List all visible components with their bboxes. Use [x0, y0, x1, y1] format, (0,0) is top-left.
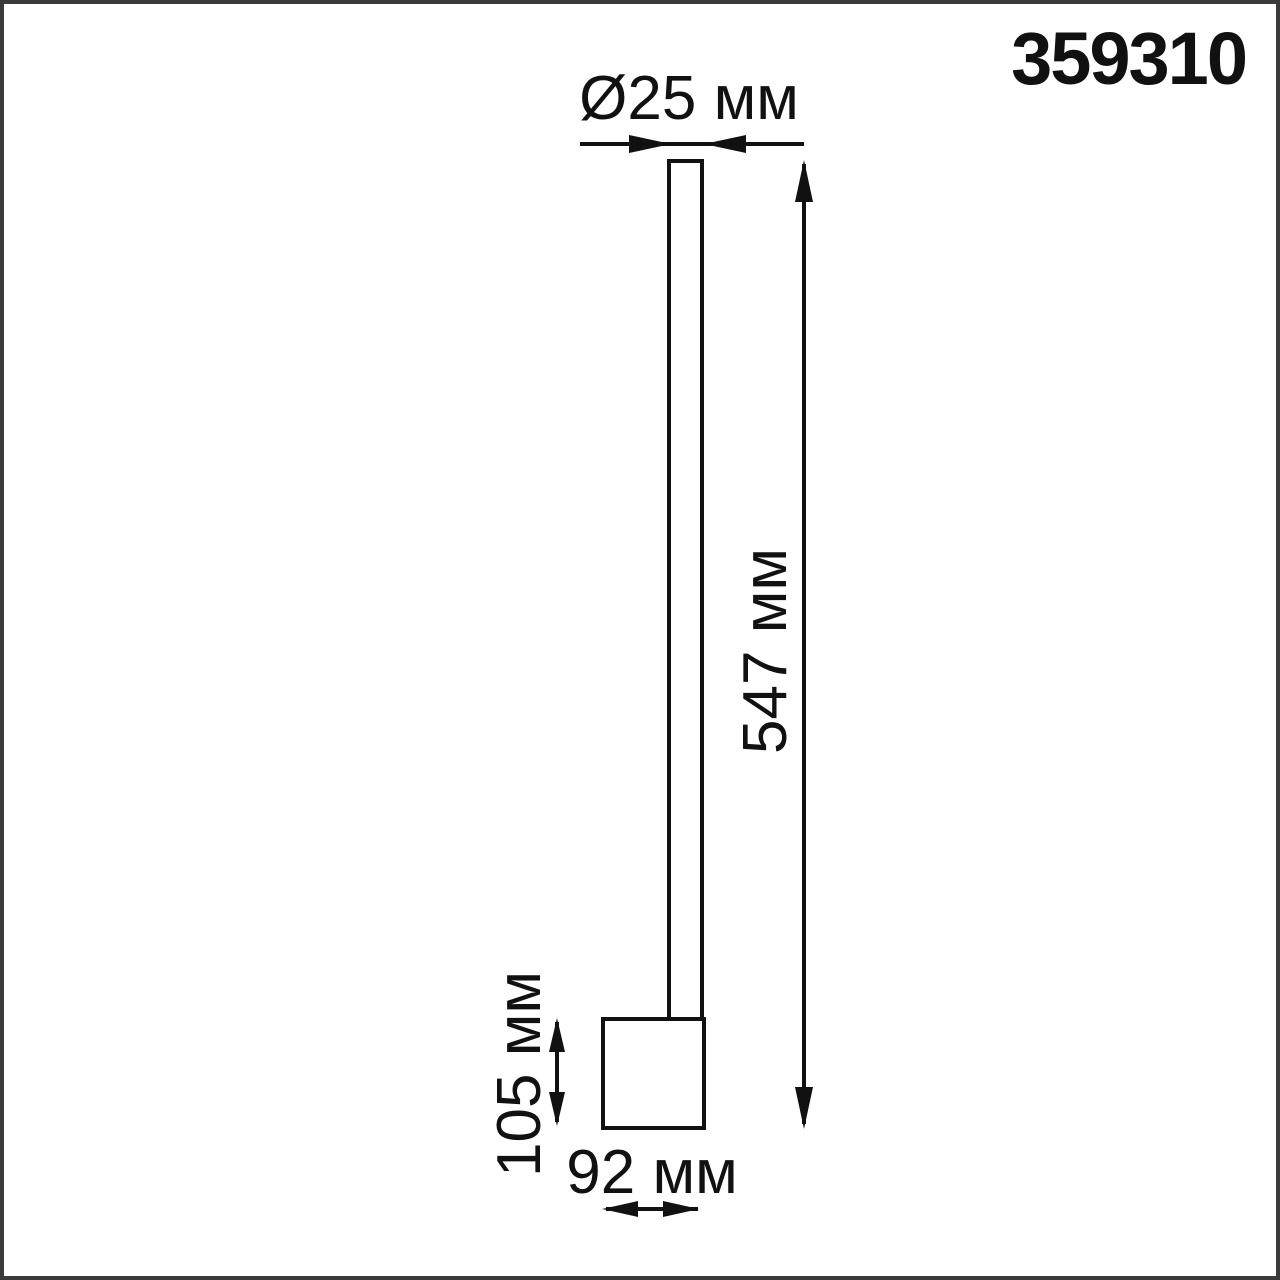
diameter-dim-line [580, 142, 804, 146]
base-width-arrow-right-icon [663, 1201, 699, 1217]
height-arrow-down-icon [795, 1087, 813, 1129]
diameter-arrow-right-icon [629, 135, 671, 153]
height-arrow-up-icon [795, 160, 813, 202]
base-height-label: 105 мм [489, 954, 551, 1194]
lamp-rod [667, 159, 704, 1021]
height-dim-line [802, 164, 806, 1124]
height-label: 547 мм [735, 531, 797, 771]
product-code: 359310 [1011, 22, 1246, 96]
diameter-label: Ø25 мм [574, 68, 804, 130]
technical-drawing: 359310 Ø25 мм 547 мм 105 мм 92 мм [0, 0, 1280, 1280]
diameter-arrow-left-icon [704, 135, 746, 153]
lamp-base [601, 1017, 706, 1130]
base-width-arrow-left-icon [602, 1201, 638, 1217]
base-width-label: 92 мм [562, 1142, 742, 1204]
